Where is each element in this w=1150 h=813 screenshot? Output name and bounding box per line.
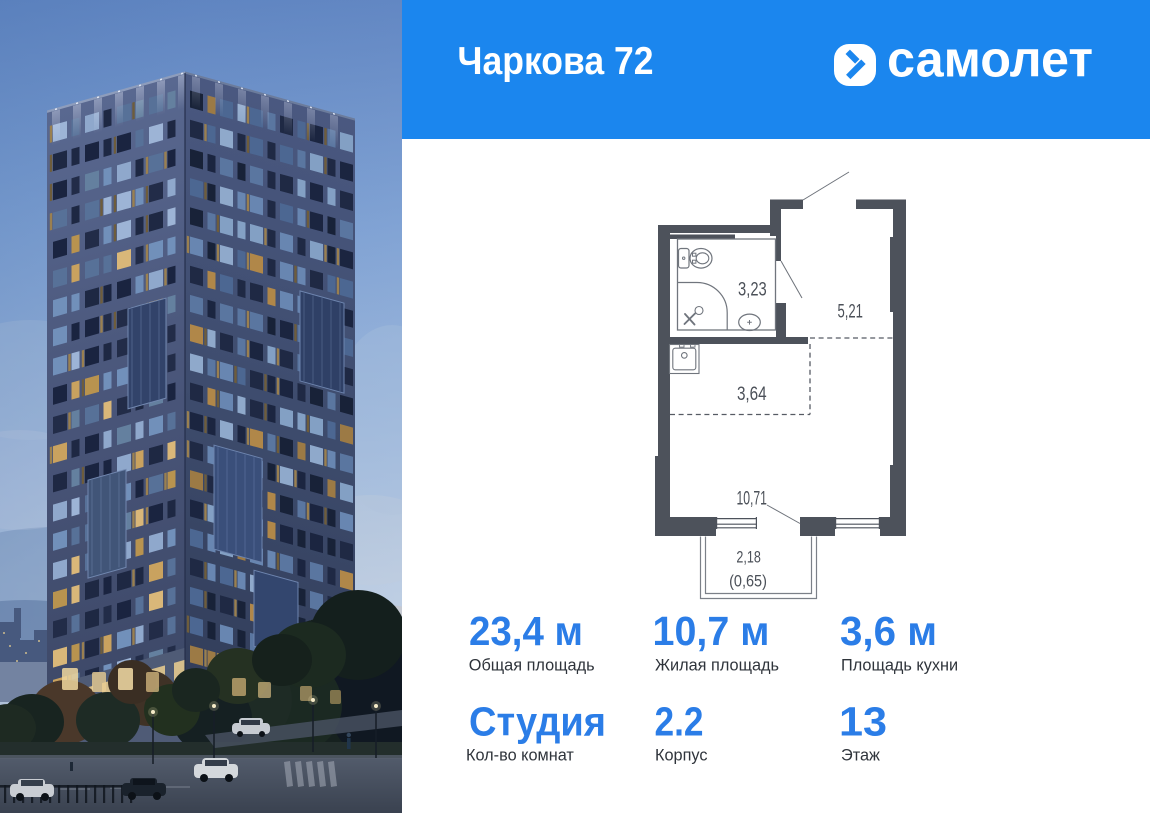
svg-text:3,23: 3,23 [738,280,767,301]
svg-text:Корпус: Корпус [655,747,708,765]
svg-text:Этаж: Этаж [841,747,880,765]
svg-text:13: 13 [839,699,887,745]
svg-text:Чаркова 72: Чаркова 72 [458,40,654,83]
svg-text:Площадь кухни: Площадь кухни [841,657,958,675]
svg-text:Кол-во комнат: Кол-во комнат [466,747,574,765]
svg-text:5,21: 5,21 [837,302,863,323]
svg-text:10,7 м: 10,7 м [653,608,770,654]
svg-text:Общая площадь: Общая площадь [469,657,595,675]
svg-text:2,18: 2,18 [736,548,760,566]
svg-text:10,71: 10,71 [736,488,767,509]
svg-text:(0,65): (0,65) [729,573,767,591]
svg-text:3,64: 3,64 [737,384,767,405]
svg-text:3,6 м: 3,6 м [840,608,937,654]
svg-text:Студия: Студия [469,699,606,745]
svg-text:самолет: самолет [887,31,1093,88]
svg-text:23,4 м: 23,4 м [469,608,583,654]
svg-text:Жилая площадь: Жилая площадь [655,657,779,675]
svg-text:2.2: 2.2 [655,699,704,745]
